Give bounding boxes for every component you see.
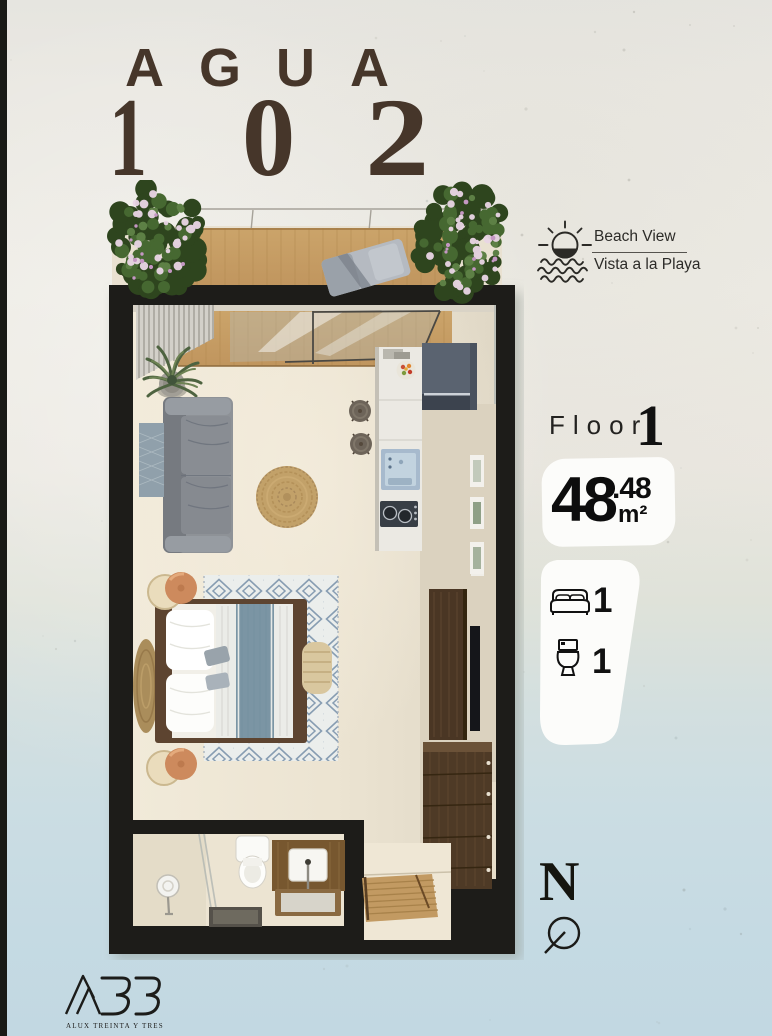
svg-text:ALUX TREINTA Y TRES: ALUX TREINTA Y TRES bbox=[66, 1022, 164, 1030]
